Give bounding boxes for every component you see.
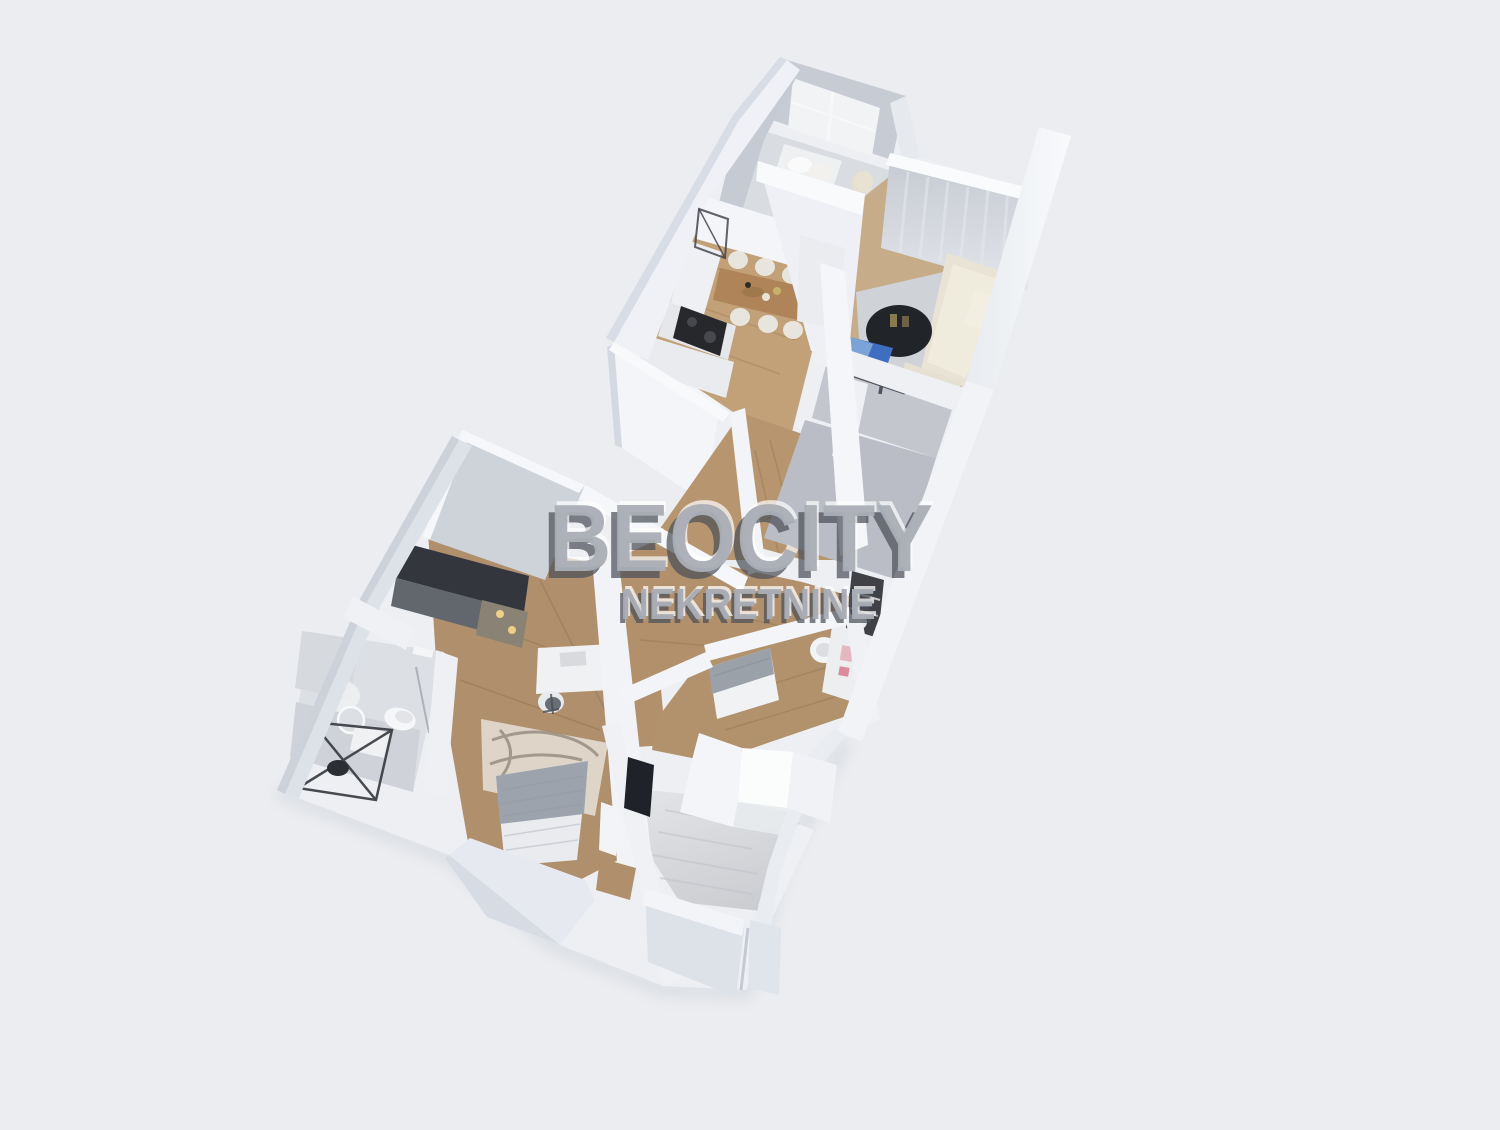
svg-text:NEKRETNINE: NEKRETNINE: [621, 580, 876, 629]
svg-text:BEOCITY: BEOCITY: [549, 485, 933, 592]
